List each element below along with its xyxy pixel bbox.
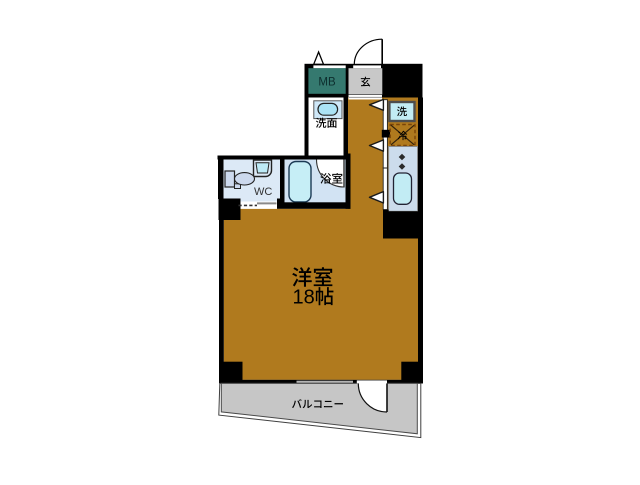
svg-text:18: 18	[293, 287, 315, 309]
svg-text:WC: WC	[254, 186, 272, 198]
svg-text:MB: MB	[318, 77, 336, 89]
